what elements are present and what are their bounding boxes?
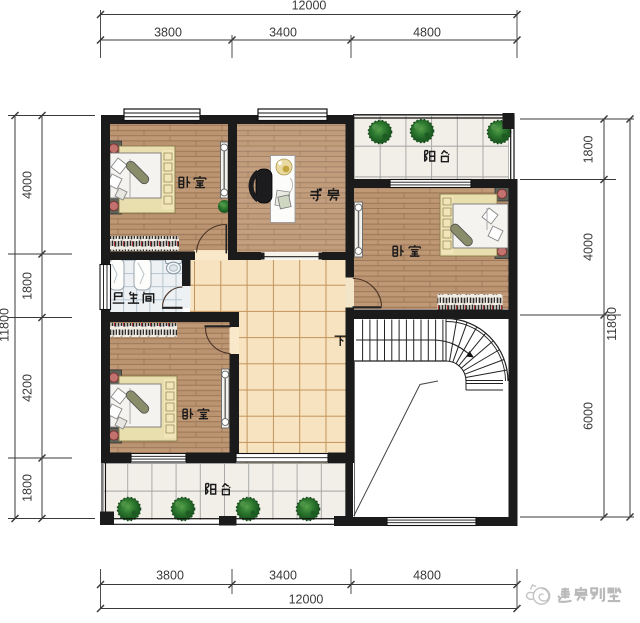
svg-text:3400: 3400 bbox=[269, 569, 297, 583]
svg-text:4200: 4200 bbox=[21, 374, 35, 402]
svg-text:6000: 6000 bbox=[582, 402, 596, 430]
svg-text:4000: 4000 bbox=[582, 233, 596, 261]
svg-text:1800: 1800 bbox=[582, 136, 596, 164]
svg-text:4800: 4800 bbox=[413, 26, 441, 40]
svg-text:4000: 4000 bbox=[21, 171, 35, 199]
svg-text:3800: 3800 bbox=[154, 26, 182, 40]
svg-text:3400: 3400 bbox=[269, 26, 297, 40]
svg-text:11800: 11800 bbox=[0, 308, 12, 342]
svg-text:1800: 1800 bbox=[21, 474, 35, 502]
svg-text:12000: 12000 bbox=[289, 593, 324, 607]
svg-text:3800: 3800 bbox=[156, 569, 184, 583]
svg-text:12000: 12000 bbox=[292, 0, 327, 13]
svg-text:1800: 1800 bbox=[21, 272, 35, 300]
svg-text:11800: 11800 bbox=[605, 307, 619, 341]
svg-text:4800: 4800 bbox=[413, 569, 441, 583]
